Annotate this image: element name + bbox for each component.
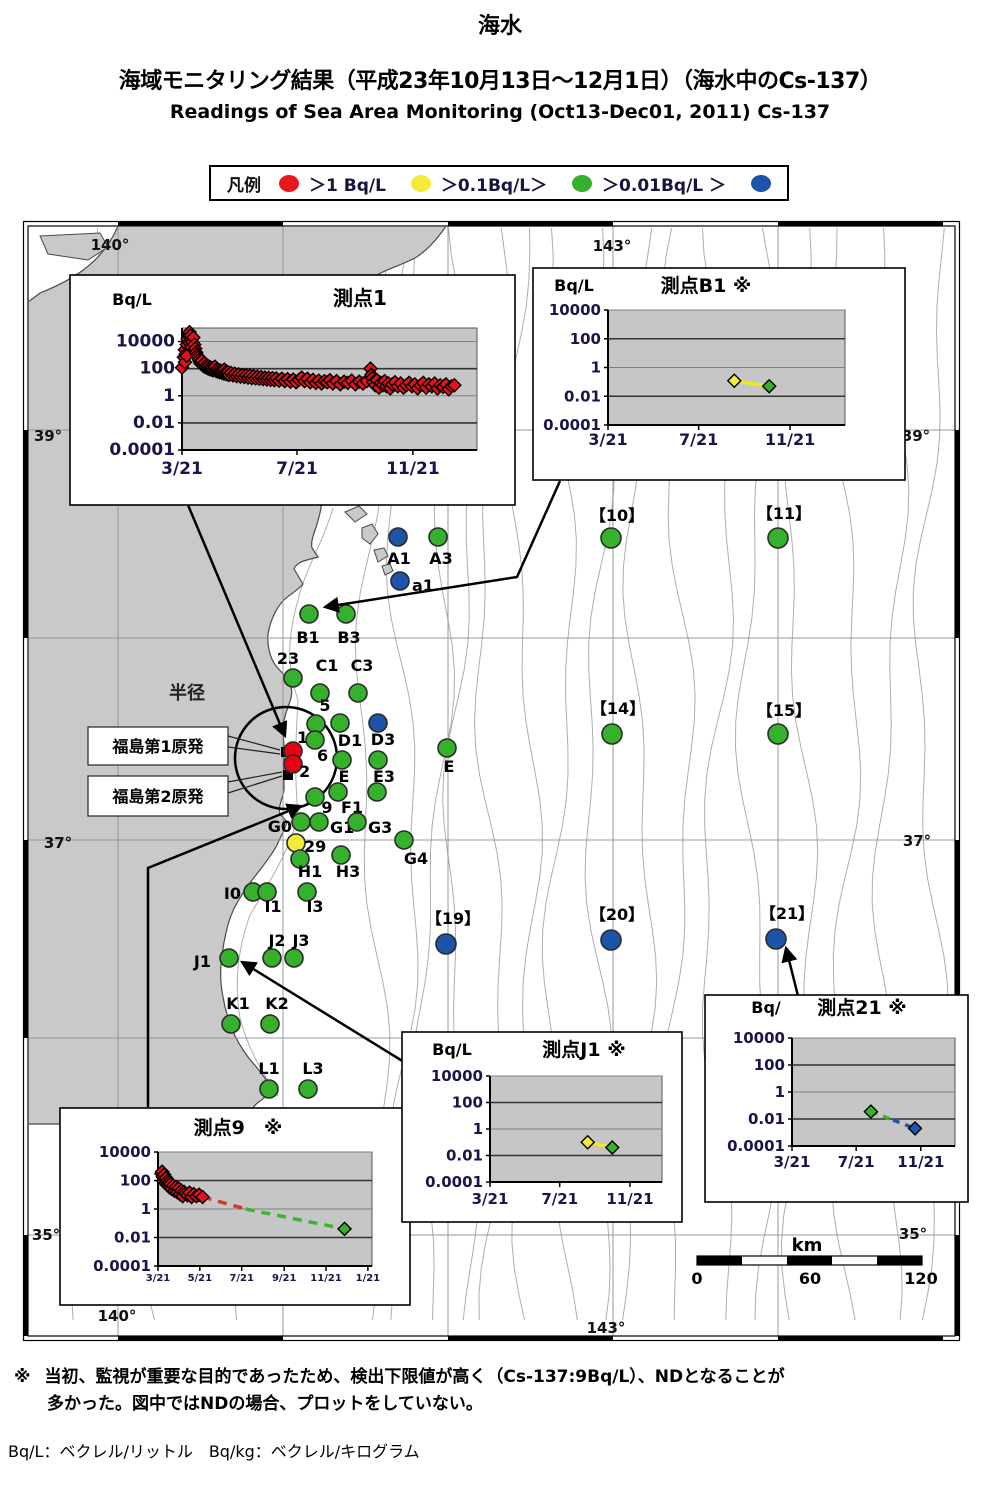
- radius-label: 半径: [169, 682, 205, 704]
- chart-xtick-label: 3/21: [472, 1190, 509, 1208]
- coord-label: 37°: [44, 834, 72, 852]
- station-dot-J3: [285, 949, 303, 967]
- station-label-J3: J3: [291, 931, 309, 950]
- station-label-A1: A1: [387, 549, 411, 568]
- station-dot-D1: [331, 714, 349, 732]
- station-dot-st11: [768, 528, 788, 548]
- chart-xtick-label: 9/21: [272, 1273, 297, 1284]
- chart-title-st9: 測点9 ※: [194, 1116, 283, 1139]
- chart-xtick-label: 11/21: [606, 1190, 653, 1208]
- chart-title-stJ1: 測点J1 ※: [542, 1038, 625, 1061]
- chart-xtick-label: 11/21: [897, 1153, 944, 1171]
- station-dot-B3: [337, 605, 355, 623]
- station-dot-G1: [310, 813, 328, 831]
- chart-ytick-label: 10000: [431, 1067, 483, 1085]
- chart-xtick-label: 11/21: [386, 459, 440, 479]
- station-dot-J2: [263, 949, 281, 967]
- chart-ytick-label: 1: [591, 359, 601, 377]
- coord-label: 37°: [903, 832, 931, 850]
- station-label-L3: L3: [302, 1059, 323, 1078]
- chart-ytick-label: 10000: [99, 1143, 151, 1161]
- station-label-J2: J2: [267, 931, 285, 950]
- coord-label: 143°: [593, 237, 632, 255]
- station-label-J1: J1: [193, 952, 211, 971]
- station-dot-A3: [429, 528, 447, 546]
- footnote-line1: 当初、監視が重要な目的であったため、検出下限値が高く（Cs-137:9Bq/L）…: [45, 1367, 785, 1387]
- chart-ytick-label: 0.01: [446, 1147, 483, 1165]
- footnote: ※当初、監視が重要な目的であったため、検出下限値が高く（Cs-137:9Bq/L…: [14, 1364, 974, 1418]
- station-dot-L3: [299, 1080, 317, 1098]
- chart-xtick-label: 7/21: [838, 1153, 875, 1171]
- coord-label: 140°: [98, 1307, 137, 1325]
- station-label-5: 5: [319, 696, 330, 715]
- plant-label-text: 福島第2原発: [111, 787, 204, 806]
- scale-tick-label: 60: [799, 1269, 821, 1288]
- station-label-G0: G0: [268, 817, 292, 836]
- station-dot-E2: [438, 739, 456, 757]
- station-label-6: 6: [317, 746, 328, 765]
- monitoring-map: 半径 福島第1原発福島第2原発 A1A3a1B1B323C1C35D1D3162…: [0, 0, 1000, 1501]
- station-dot-L1: [260, 1080, 278, 1098]
- chart-ytick-label: 0.01: [564, 387, 601, 405]
- station-label-2: 2: [299, 762, 310, 781]
- chart-ylabel: Bq/L: [112, 290, 152, 309]
- chart-ytick-label: 0.0001: [109, 440, 175, 460]
- station-label-st20: 【20】: [590, 905, 644, 924]
- chart-ytick-label: 100: [140, 359, 176, 379]
- chart-ylabel: Bq/: [751, 998, 781, 1017]
- chart-ytick-label: 0.0001: [425, 1173, 483, 1191]
- coord-label: 140°: [91, 236, 130, 254]
- chart-ylabel: Bq/L: [432, 1040, 472, 1059]
- chart-ylabel: Bq/L: [554, 276, 594, 295]
- chart-xtick-label: 7/21: [541, 1190, 578, 1208]
- station-label-L1: L1: [258, 1059, 279, 1078]
- scale-unit-label: km: [792, 1235, 823, 1256]
- station-dot-G3: [348, 813, 366, 831]
- station-label-C3: C3: [351, 656, 374, 675]
- station-label-A3: A3: [429, 549, 453, 568]
- coord-label: 35°: [32, 1226, 60, 1244]
- coord-label: 39°: [34, 427, 62, 445]
- inset-chart-st1: 測点1Bq/L1000010010.010.00013/217/2111/21: [70, 275, 515, 505]
- inset-chart-st21: 測点21 ※Bq/1000010010.010.00013/217/2111/2…: [705, 995, 968, 1202]
- station-label-G4: G4: [404, 849, 428, 868]
- chart-xtick-label: 5/21: [188, 1273, 213, 1284]
- scale-tick-label: 120: [904, 1269, 937, 1288]
- station-dot-C3: [349, 684, 367, 702]
- station-dot-J1: [220, 949, 238, 967]
- scale-tick-label: 0: [691, 1269, 702, 1288]
- chart-title-st21: 測点21 ※: [817, 996, 907, 1019]
- inset-chart-stJ1: 測点J1 ※Bq/L1000010010.010.00013/217/2111/…: [402, 1032, 682, 1222]
- chart-xtick-label: 3/21: [161, 459, 203, 479]
- station-dot-st20: [601, 930, 621, 950]
- station-label-K2: K2: [265, 994, 289, 1013]
- chart-ytick-label: 1: [141, 1200, 151, 1218]
- station-dot-G0: [292, 813, 310, 831]
- station-dot-A1: [389, 528, 407, 546]
- chart-xtick-label: 11/21: [310, 1273, 342, 1284]
- chart-ytick-label: 100: [570, 330, 601, 348]
- station-label-I1: I1: [264, 897, 281, 916]
- chart-xtick-label: 7/21: [276, 459, 318, 479]
- chart-ytick-label: 100: [120, 1172, 151, 1190]
- plant-label-text: 福島第1原発: [111, 737, 204, 756]
- coord-label: 143°: [587, 1319, 626, 1337]
- station-dot-st15: [768, 724, 788, 744]
- sea-water-monitoring-figure: 海水 海域モニタリング結果（平成23年10月13日～12月1日）（海水中のCs-…: [0, 0, 1000, 1501]
- units-definition: Bq/L：ベクレル/リットル Bq/kg：ベクレル/キログラム: [8, 1438, 420, 1462]
- station-label-K1: K1: [226, 994, 250, 1013]
- station-label-C1: C1: [316, 656, 339, 675]
- chart-ytick-label: 0.01: [133, 413, 175, 433]
- chart-ytick-label: 10000: [116, 332, 175, 352]
- chart-xtick-label: 3/21: [774, 1153, 811, 1171]
- station-label-B3: B3: [337, 628, 360, 647]
- station-label-B1: B1: [296, 628, 319, 647]
- chart-ytick-label: 0.01: [748, 1110, 785, 1128]
- station-dot-st19: [436, 934, 456, 954]
- chart-xtick-label: 1/21: [356, 1273, 381, 1284]
- station-dot-K1: [222, 1015, 240, 1033]
- chart-ytick-label: 1: [775, 1083, 785, 1101]
- station-label-H3: H3: [336, 862, 361, 881]
- inset-chart-st9: 測点9 ※1000010010.010.00013/215/217/219/21…: [60, 1108, 410, 1305]
- station-label-st14: 【14】: [591, 699, 645, 718]
- station-label-st11: 【11】: [757, 504, 811, 523]
- station-dot-23: [284, 669, 302, 687]
- station-label-D3: D3: [371, 730, 395, 749]
- station-label-I0: I0: [224, 884, 241, 903]
- chart-xtick-label: 3/21: [588, 430, 627, 449]
- station-label-G3: G3: [368, 818, 392, 837]
- chart-title-st1: 測点1: [333, 286, 387, 310]
- station-dot-st21: [766, 929, 786, 949]
- chart-ytick-label: 0.0001: [93, 1257, 151, 1275]
- chart-xtick-label: 11/21: [765, 430, 815, 449]
- chart-title-stB1: 測点B1 ※: [661, 274, 752, 297]
- station-dot-a1: [391, 572, 409, 590]
- chart-ytick-label: 1: [473, 1120, 483, 1138]
- chart-xtick-label: 7/21: [229, 1273, 254, 1284]
- chart-ytick-label: 100: [754, 1056, 785, 1074]
- station-label-I3: I3: [306, 897, 323, 916]
- station-dot-F3: [368, 783, 386, 801]
- inset-chart-stB1: 測点B1 ※Bq/L1000010010.010.00013/217/2111/…: [533, 268, 905, 480]
- chart-xtick-label: 7/21: [679, 430, 718, 449]
- station-label-st19: 【19】: [426, 909, 480, 928]
- station-dot-st10: [601, 528, 621, 548]
- coord-label: 39°: [902, 427, 930, 445]
- footnote-line2: 多かった。図中ではNDの場合、プロットをしていない。: [47, 1394, 483, 1414]
- chart-ytick-label: 1: [163, 386, 175, 406]
- chart-ytick-label: 10000: [733, 1029, 785, 1047]
- coord-label: 35°: [899, 1225, 927, 1243]
- station-label-st10: 【10】: [590, 506, 644, 525]
- station-dot-st14: [602, 724, 622, 744]
- station-label-23: 23: [277, 649, 299, 668]
- station-label-st21: 【21】: [760, 904, 814, 923]
- station-dot-K2: [261, 1015, 279, 1033]
- station-label-H1: H1: [298, 862, 323, 881]
- station-dot-B1: [300, 605, 318, 623]
- station-dot-G4: [395, 831, 413, 849]
- chart-ytick-label: 10000: [549, 301, 601, 319]
- footnote-mark: ※: [14, 1367, 31, 1387]
- station-label-E2: E: [444, 757, 455, 776]
- station-dot-29: [287, 834, 305, 852]
- chart-ytick-label: 0.01: [114, 1229, 151, 1247]
- chart-ytick-label: 100: [452, 1094, 483, 1112]
- station-label-D1: D1: [338, 731, 362, 750]
- station-label-st15: 【15】: [757, 701, 811, 720]
- chart-xtick-label: 3/21: [146, 1273, 171, 1284]
